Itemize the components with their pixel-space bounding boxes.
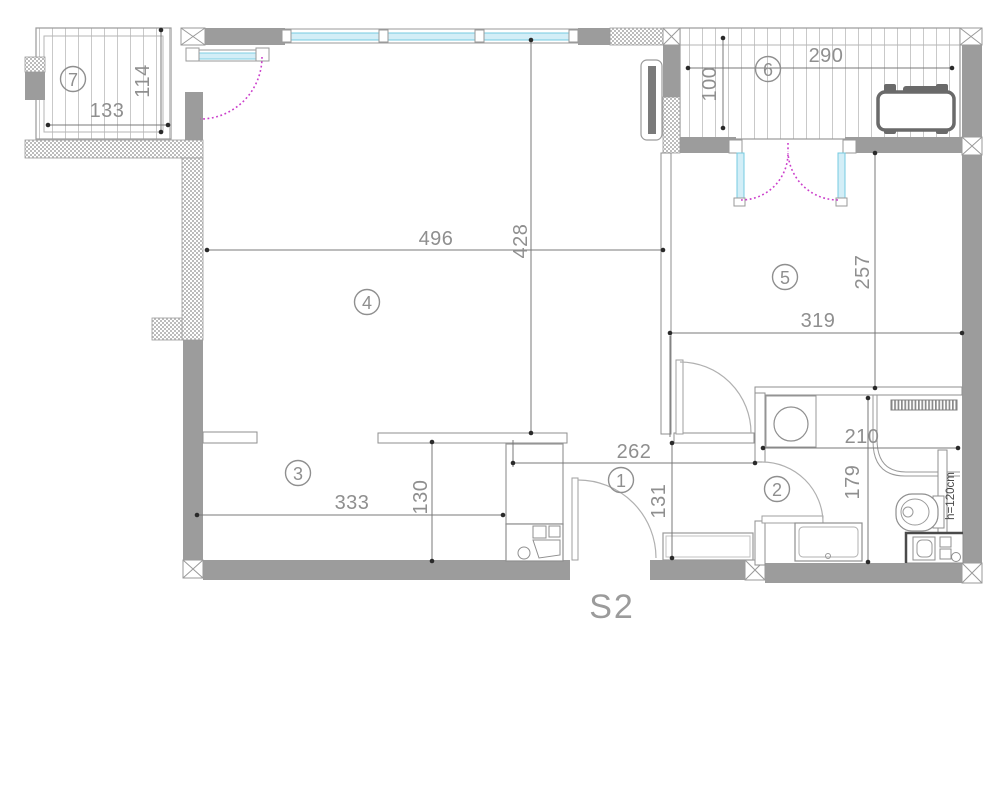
dim-living-width: 496 [419, 228, 454, 250]
svg-text:6: 6 [763, 60, 773, 80]
kitchen-sink-unit [506, 524, 563, 561]
svg-text:5: 5 [780, 268, 790, 288]
room-label-3: 3 [286, 461, 311, 486]
room-label-1: 1 [609, 468, 634, 493]
bedroom-door [676, 360, 751, 434]
svg-text:4: 4 [362, 293, 372, 313]
dim-dining-width: 333 [335, 492, 370, 514]
door-swing-arc [200, 57, 262, 119]
bathtub [795, 523, 862, 561]
dim-balcony-right-width: 290 [809, 45, 844, 67]
dim-living-depth: 428 [510, 224, 532, 259]
washbasin [766, 396, 816, 447]
hall-cabinet [663, 533, 753, 560]
balcony-bench [878, 84, 954, 134]
svg-text:1: 1 [616, 471, 626, 491]
washing-machine [906, 533, 963, 563]
kitchen-cabinet [506, 444, 563, 524]
svg-text:3: 3 [293, 464, 303, 484]
main-window [282, 29, 578, 43]
svg-text:2: 2 [772, 480, 782, 500]
thin-walls [203, 153, 962, 565]
dim-bathroom-depth: 179 [842, 465, 864, 500]
dim-hall-depth: 131 [648, 484, 670, 519]
dim-bathroom-width: 210 [845, 426, 880, 448]
room-label-2: 2 [765, 477, 790, 502]
svg-text:7: 7 [68, 70, 78, 90]
dim-bedroom-depth: 257 [852, 255, 874, 290]
room-label-4: 4 [355, 290, 380, 315]
shower-grate [891, 400, 957, 410]
radiator [641, 60, 662, 140]
partition-height-note: h=120cm [945, 472, 957, 520]
door-swing-arc [680, 362, 751, 433]
dim-balcony-right-depth: 100 [699, 67, 721, 102]
plan-title: S2 [589, 588, 635, 626]
floor-plan-page: 133 114 496 428 290 100 257 319 333 130 … [0, 0, 1000, 800]
dim-kitchen-nook-depth: 130 [410, 480, 432, 515]
dim-hall-width: 262 [617, 441, 652, 463]
french-doors [729, 140, 856, 206]
dim-bedroom-width: 319 [801, 310, 836, 332]
door-swing-arcs [741, 143, 838, 200]
dim-balcony-left-width: 133 [90, 100, 125, 122]
room-label-5: 5 [773, 265, 798, 290]
toilet [896, 494, 944, 531]
floor-plan-canvas: 133 114 496 428 290 100 257 319 333 130 … [0, 0, 1000, 800]
dim-balcony-left-depth: 114 [132, 64, 154, 97]
